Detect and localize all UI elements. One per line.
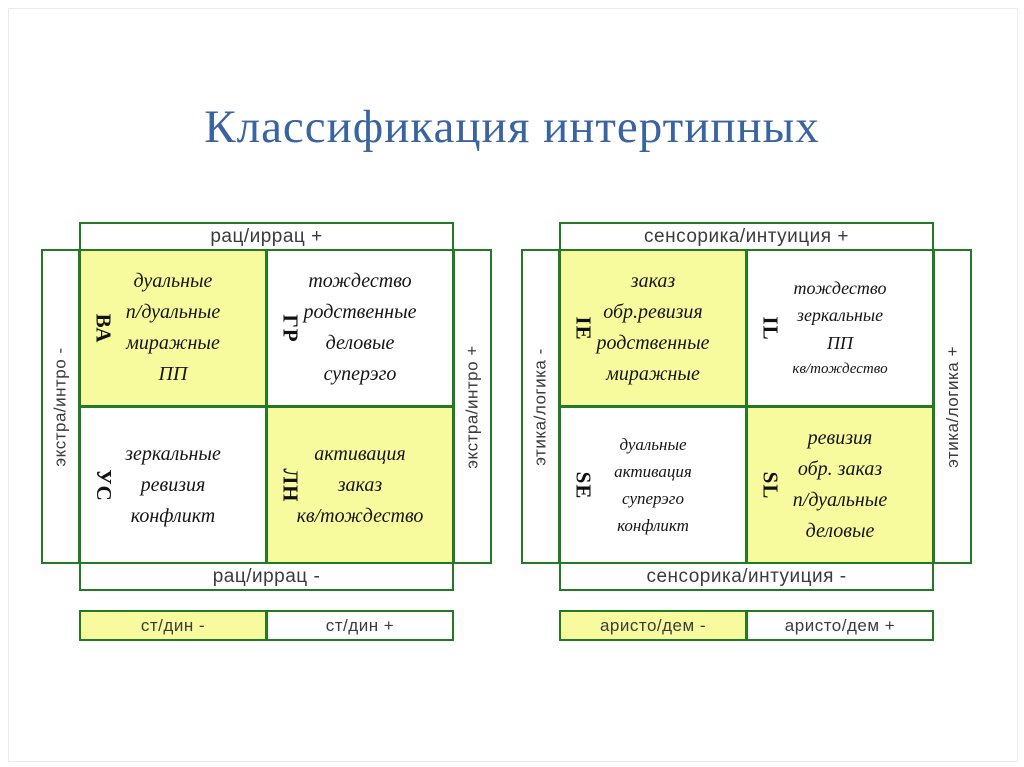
quadrant-code: ГР — [268, 251, 312, 405]
relation-item: заказ — [597, 266, 710, 297]
quadrant-code: IE — [561, 251, 605, 405]
axis-bottom-label: сенсорика/интуиция - — [559, 562, 934, 591]
quadrant-code: ВА — [81, 251, 125, 405]
slide: Классификация интертипных рац/иррац + эк… — [0, 0, 1024, 767]
axis-bottom-text: рац/иррац - — [213, 566, 321, 588]
quadrant-relations-list: активация заказ кв/тождество — [297, 439, 424, 532]
relation-item: активация — [297, 439, 424, 470]
axis-left-text: экстра/интро - — [51, 347, 71, 466]
quadrant-sl: SL ревизия обр. заказ п/дуальные деловые — [748, 408, 932, 562]
quadrant-grid: IE заказ обр.ревизия родственные миражны… — [559, 249, 934, 564]
axis-right-label: этика/логика + — [933, 249, 972, 564]
relation-item: дуальные — [126, 266, 220, 297]
diagram-sensing-intuition: сенсорика/интуиция + этика/логика - IE з… — [521, 222, 972, 641]
relation-item: деловые — [793, 516, 887, 547]
quadrant-se: SE дуальные активация суперэго конфликт — [561, 408, 745, 562]
aristocracy-democracy-strip: аристо/дем - аристо/дем + — [559, 610, 934, 641]
relation-item: суперэго — [304, 359, 417, 390]
axis-right-text: экстра/интро + — [463, 345, 483, 468]
relation-item: родственные — [304, 297, 417, 328]
quadrant-relations-list: ревизия обр. заказ п/дуальные деловые — [793, 423, 887, 547]
quadrant-il: IL тождество зеркальные ПП кв/тождество — [748, 251, 932, 405]
strip-cell-positive: ст/дин + — [268, 612, 452, 639]
strip-cell-negative: ст/дин - — [81, 612, 265, 639]
quadrant-code: SL — [748, 408, 792, 562]
quadrant-ln: ЛН активация заказ кв/тождество — [268, 408, 452, 562]
axis-top-label: сенсорика/интуиция + — [559, 222, 934, 251]
strip-cell-negative: аристо/дем - — [561, 612, 745, 639]
quadrant-relations-list: дуальные активация суперэго конфликт — [614, 431, 692, 540]
diagram-rational-irrational: рац/иррац + экстра/интро - ВА дуальные п… — [41, 222, 492, 641]
axis-bottom-text: сенсорика/интуиция - — [646, 566, 846, 588]
relation-item: родственные — [597, 328, 710, 359]
quadrant-code: УС — [81, 408, 125, 562]
quadrant-relations-list: тождество родственные деловые суперэго — [304, 266, 417, 390]
quadrant-relations-list: заказ обр.ревизия родственные миражные — [597, 266, 710, 390]
relation-item: заказ — [297, 470, 424, 501]
relation-item: п/дуальные — [126, 297, 220, 328]
relation-item: ревизия — [793, 423, 887, 454]
quadrant-relations-list: тождество зеркальные ПП кв/тождество — [792, 275, 887, 382]
quadrant-gr: ГР тождество родственные деловые суперэг… — [268, 251, 452, 405]
quadrant-code: SE — [561, 408, 605, 562]
relation-item: миражные — [597, 359, 710, 390]
quadrant-grid: ВА дуальные п/дуальные миражные ПП ГР то… — [79, 249, 454, 564]
relation-item: дуальные — [614, 431, 692, 458]
strip-cell-positive: аристо/дем + — [748, 612, 932, 639]
axis-right-label: экстра/интро + — [453, 249, 492, 564]
relation-item: тождество — [792, 275, 887, 303]
quadrant-code: ЛН — [268, 408, 312, 562]
relation-item: конфликт — [614, 512, 692, 539]
axis-top-text: рац/иррац + — [210, 226, 322, 248]
relation-item: тождество — [304, 266, 417, 297]
axis-right-text: этика/логика + — [943, 346, 963, 468]
relation-item: кв/тождество — [792, 358, 887, 381]
axis-left-label: экстра/интро - — [41, 249, 80, 564]
relation-item: активация — [614, 458, 692, 485]
relation-item: конфликт — [125, 501, 221, 532]
relation-item: зеркальные — [125, 439, 221, 470]
quadrant-code: IL — [748, 251, 792, 405]
relation-item: кв/тождество — [297, 501, 424, 532]
statics-dynamics-strip: ст/дин - ст/дин + — [79, 610, 454, 641]
relation-item: миражные — [126, 328, 220, 359]
relation-item: обр. заказ — [793, 454, 887, 485]
relation-item: ревизия — [125, 470, 221, 501]
relation-item: суперэго — [614, 485, 692, 512]
axis-bottom-label: рац/иррац - — [79, 562, 454, 591]
quadrant-relations-list: дуальные п/дуальные миражные ПП — [126, 266, 220, 390]
quadrant-va: ВА дуальные п/дуальные миражные ПП — [81, 251, 265, 405]
relation-item: ПП — [792, 330, 887, 358]
axis-left-label: этика/логика - — [521, 249, 560, 564]
quadrant-relations-list: зеркальные ревизия конфликт — [125, 439, 221, 532]
relation-item: ПП — [126, 359, 220, 390]
relation-item: зеркальные — [792, 302, 887, 330]
relation-item: обр.ревизия — [597, 297, 710, 328]
page-title: Классификация интертипных — [0, 100, 1024, 154]
relation-item: деловые — [304, 328, 417, 359]
quadrant-us: УС зеркальные ревизия конфликт — [81, 408, 265, 562]
relation-item: п/дуальные — [793, 485, 887, 516]
quadrant-ie: IE заказ обр.ревизия родственные миражны… — [561, 251, 745, 405]
axis-top-label: рац/иррац + — [79, 222, 454, 251]
axis-top-text: сенсорика/интуиция + — [644, 226, 849, 248]
axis-left-text: этика/логика - — [531, 348, 551, 465]
